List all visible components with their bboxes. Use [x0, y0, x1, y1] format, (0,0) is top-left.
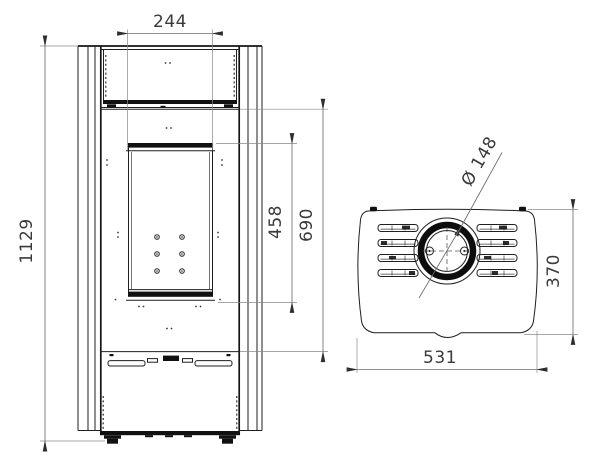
- glass-top-band: [128, 143, 213, 148]
- stove-dimension-drawing: 1129 244 458 690: [0, 0, 600, 465]
- warming-compartment: [100, 50, 240, 109]
- glass-bottom-band: [128, 292, 213, 297]
- technical-drawing-page: 1129 244 458 690: [0, 0, 600, 465]
- dim-overall-height: 1129: [17, 46, 105, 441]
- handle-slat-right: [195, 361, 232, 366]
- handle-slat-left: [108, 361, 145, 366]
- latch: [163, 356, 179, 361]
- base: [100, 431, 240, 444]
- dim-glass-width: 244: [128, 12, 213, 150]
- dim-door-height-label: 690: [297, 208, 317, 242]
- dim-overall-height-label: 1129: [17, 218, 37, 263]
- dim-glass-height-label: 458: [266, 205, 286, 239]
- hinge-pin-right: [519, 207, 526, 212]
- dim-depth-label: 370: [544, 254, 564, 288]
- air-hole-pattern: [155, 235, 185, 274]
- hinge-pin-left: [370, 207, 377, 212]
- base-drawer: [100, 352, 240, 429]
- dim-width-label: 531: [423, 348, 457, 368]
- top-view: Ø 148: [358, 133, 537, 337]
- dim-flue-diameter-label: Ø 148: [458, 133, 502, 190]
- dim-glass-width-label: 244: [153, 12, 187, 32]
- left-foot: [104, 435, 121, 443]
- front-view: [78, 46, 262, 444]
- right-foot: [219, 435, 236, 443]
- dim-depth: 370: [524, 210, 578, 335]
